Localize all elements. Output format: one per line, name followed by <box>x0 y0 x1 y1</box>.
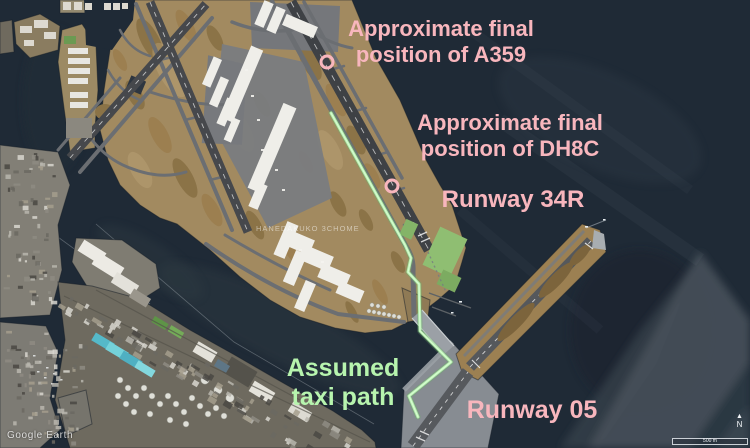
scale-bar: 500 m <box>672 438 748 445</box>
satellite-map-view[interactable]: HANEDAKUKO 3CHOME Google Earth 500 m ▲ N… <box>0 0 750 448</box>
scale-bar-label: 500 m <box>703 439 717 444</box>
satellite-canvas <box>0 0 750 448</box>
